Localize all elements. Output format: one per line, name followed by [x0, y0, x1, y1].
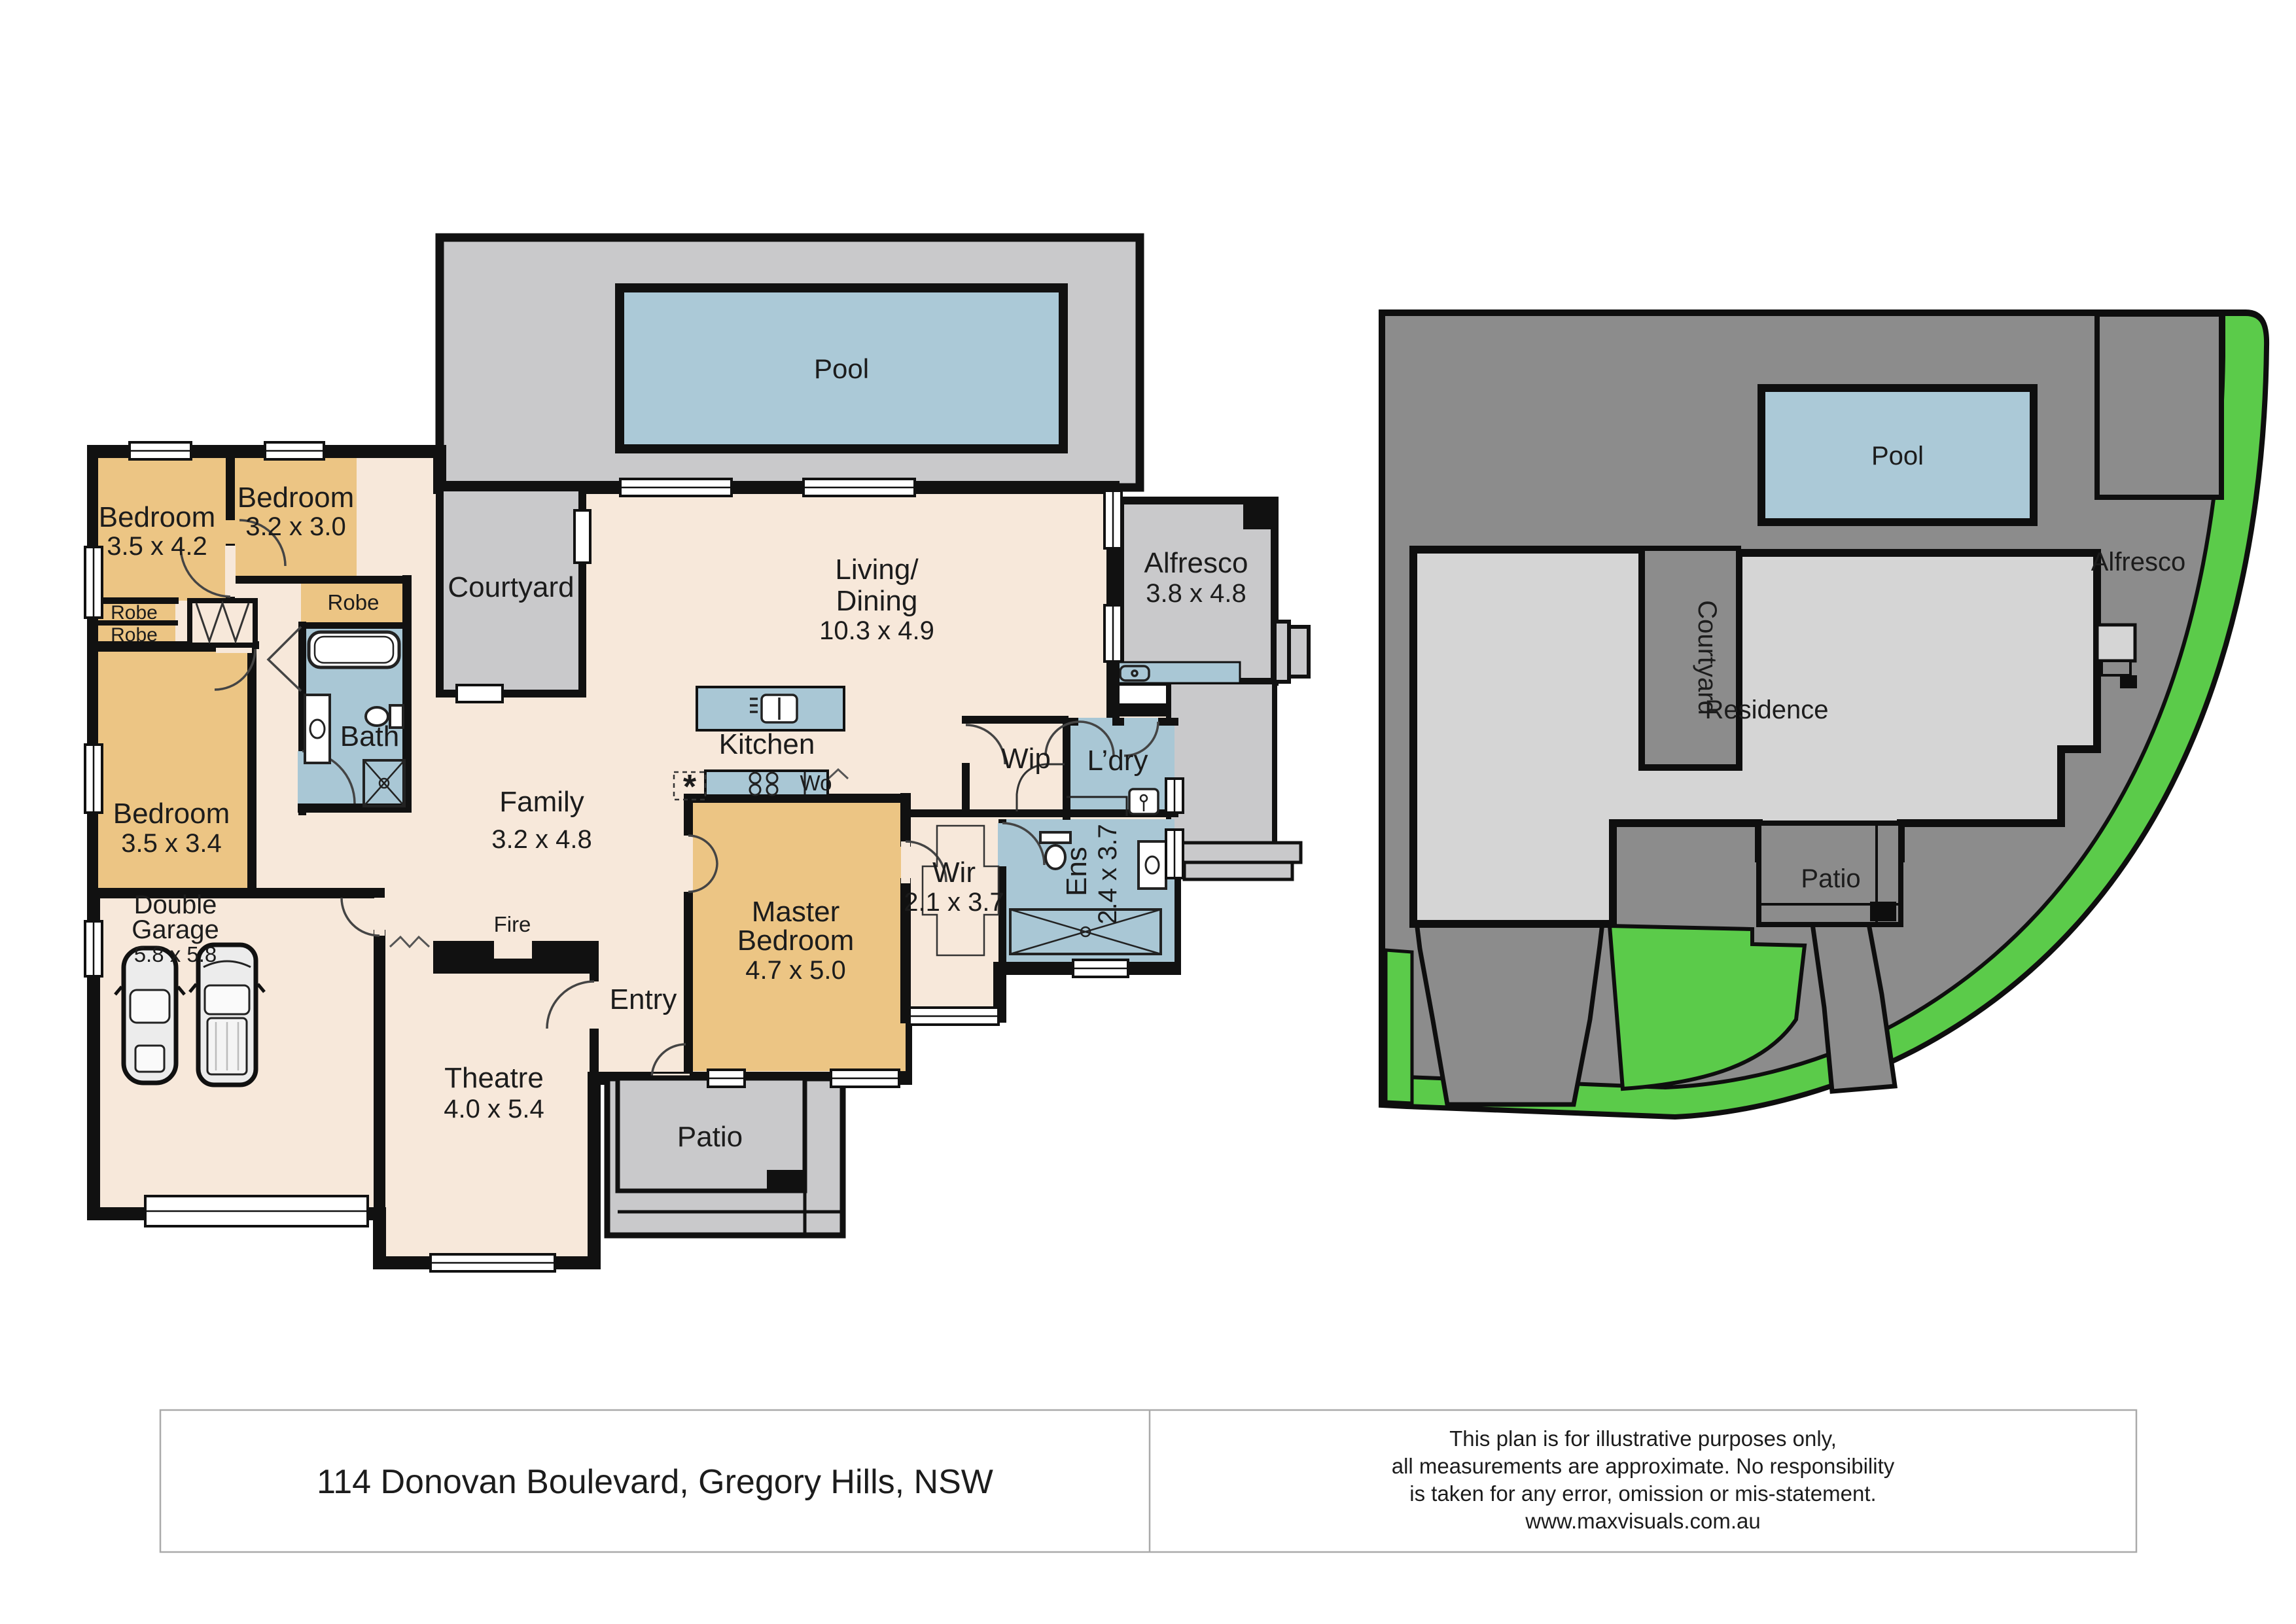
- alfresco-landing: [1169, 682, 1275, 844]
- driveway: [1415, 906, 1604, 1104]
- alfresco-nib-2: [1289, 627, 1309, 677]
- bedroom1-dims: 3.5 x 4.2: [107, 532, 207, 561]
- site-alfresco-block: [2097, 314, 2221, 497]
- disclaimer-line-3: is taken for any error, omission or mis-…: [1409, 1481, 1876, 1506]
- bedroom1-label: Bedroom: [99, 501, 216, 533]
- floorplan-page: Pool Courtyard Alfresco 3.8 x 4.8: [0, 0, 2296, 1624]
- theatre-label: Theatre: [444, 1062, 544, 1094]
- master-dims: 4.7 x 5.0: [745, 956, 845, 985]
- garage-dims: 5.8 x 5.8: [134, 942, 217, 966]
- master-label-1: Master: [752, 896, 839, 928]
- wir-dims: 2.1 x 3.7: [904, 888, 1004, 917]
- disclaimer-line-2: all measurements are approximate. No res…: [1392, 1454, 1895, 1478]
- fireplace-notch: [494, 941, 532, 959]
- robe-b-label: Robe: [111, 624, 158, 646]
- ensuite-label: Ens: [1061, 847, 1093, 896]
- alfresco-nib-1: [1275, 622, 1289, 682]
- fire-label: Fire: [494, 912, 531, 936]
- ensuite-dims: 2.4 x 3.7: [1093, 824, 1122, 924]
- kitchen-label: Kitchen: [719, 728, 815, 760]
- laundry-sink-icon: [1129, 789, 1158, 814]
- site-courtyard: [1642, 548, 1739, 767]
- family-dims: 3.2 x 4.8: [491, 825, 592, 854]
- bedroom3-dims: 3.5 x 3.4: [121, 829, 221, 858]
- pool-label: Pool: [814, 353, 869, 384]
- wip-label: Wip: [1001, 743, 1051, 775]
- garage-door: [145, 1196, 368, 1226]
- robe-a-label: Robe: [111, 602, 158, 624]
- living-dims: 10.3 x 4.9: [819, 616, 934, 645]
- car-icon-sedan: [115, 948, 185, 1083]
- alfresco-corner-post: [1243, 501, 1275, 529]
- alfresco-dims: 3.8 x 4.8: [1146, 579, 1246, 608]
- site-patio-label: Patio: [1801, 864, 1860, 893]
- wir-label: Wir: [932, 856, 976, 889]
- site-residence-label: Residence: [1704, 696, 1828, 724]
- hall-closet: [190, 601, 255, 645]
- theatre-dims: 4.0 x 5.4: [444, 1095, 544, 1123]
- main-floor-plan: Pool Courtyard Alfresco 3.8 x 4.8: [85, 238, 1309, 1271]
- alfresco-step-1: [1176, 843, 1301, 862]
- pantry-star: *: [683, 768, 697, 806]
- grass-strip-left: [1386, 950, 1412, 1103]
- living-label-1: Living/: [835, 554, 919, 586]
- patio-label: Patio: [677, 1121, 743, 1153]
- site-plan: Pool Courtyard Alfresco Residence Patio: [1382, 313, 2266, 1116]
- property-address: 114 Donovan Boulevard, Gregory Hills, NS…: [317, 1463, 993, 1501]
- site-alfresco-label: Alfresco: [2091, 548, 2186, 576]
- bath-label: Bath: [340, 720, 400, 752]
- laundry-label: L’dry: [1087, 745, 1148, 777]
- plan-canvas: Pool Courtyard Alfresco 3.8 x 4.8: [0, 0, 2296, 1624]
- site-pool-label: Pool: [1871, 442, 1924, 470]
- bedroom2-dims: 3.2 x 3.0: [245, 512, 345, 541]
- garage-label-2: Garage: [132, 915, 219, 944]
- oven-label: Wo: [800, 771, 832, 795]
- entry-label: Entry: [610, 983, 677, 1015]
- alfresco-step-2: [1184, 862, 1292, 879]
- bedroom2-label: Bedroom: [238, 482, 355, 514]
- courtyard-label: Courtyard: [448, 571, 574, 603]
- disclaimer-website: www.maxvisuals.com.au: [1525, 1509, 1760, 1533]
- master-label-2: Bedroom: [737, 925, 855, 957]
- alfresco-label: Alfresco: [1144, 547, 1248, 579]
- patio: [607, 1078, 843, 1235]
- family-label: Family: [499, 786, 584, 818]
- footer: 114 Donovan Boulevard, Gregory Hills, NS…: [160, 1410, 2136, 1552]
- living-label-2: Dining: [836, 585, 918, 617]
- robe-bed2-label: Robe: [328, 590, 380, 614]
- disclaimer-line-1: This plan is for illustrative purposes o…: [1449, 1426, 1837, 1451]
- bedroom3-label: Bedroom: [113, 798, 230, 830]
